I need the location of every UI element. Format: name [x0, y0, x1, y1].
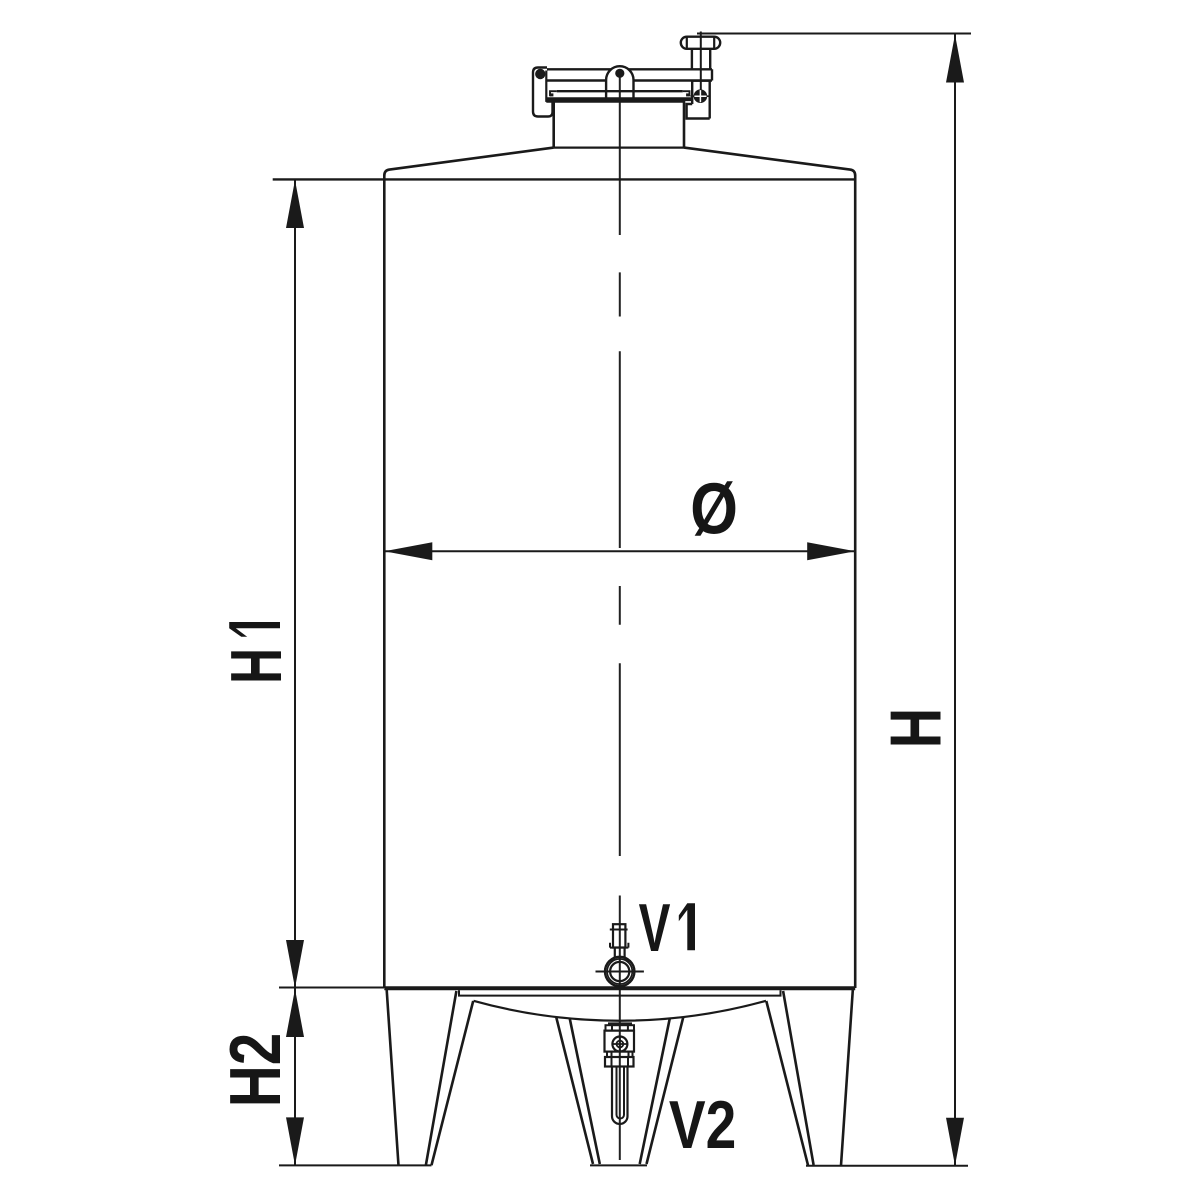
- svg-text:H2: H2: [215, 1033, 295, 1108]
- svg-text:H: H: [217, 648, 297, 684]
- svg-text:Ø: Ø: [690, 469, 738, 550]
- svg-text:V: V: [639, 891, 671, 966]
- svg-text:V2: V2: [669, 1088, 736, 1164]
- svg-text:H: H: [876, 708, 956, 748]
